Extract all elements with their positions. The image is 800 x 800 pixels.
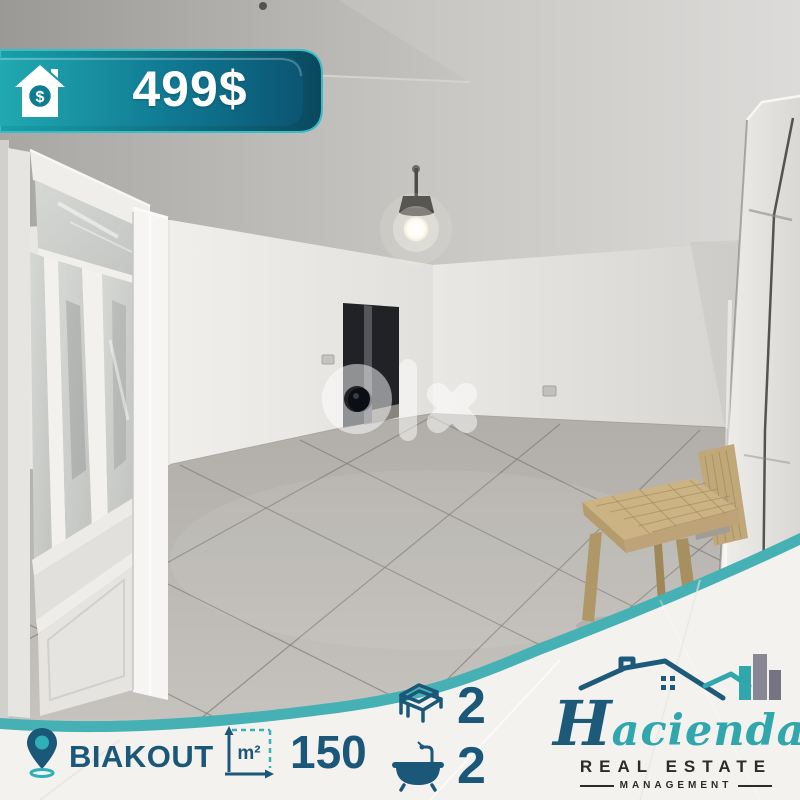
bedrooms-count: 2 [457, 680, 486, 732]
area-row: m² 150 [222, 722, 367, 782]
location-row: BIAKOUT [24, 726, 214, 788]
brand-tagline: REAL ESTATE [553, 757, 799, 777]
price-label: 499$ [88, 60, 292, 118]
location-label: BIAKOUT [69, 739, 214, 775]
bath-icon [388, 740, 448, 792]
bedrooms-row: 2 [392, 680, 486, 732]
area-value: 150 [290, 725, 367, 779]
rule-right [738, 785, 772, 787]
brand-name-rest: acienda [612, 706, 800, 756]
bathrooms-row: 2 [388, 740, 486, 792]
real-estate-ad: $ 499$ BIAKOUT m² 150 2 2 [0, 0, 800, 800]
square-meters-unit: m² [237, 743, 260, 764]
ceiling-spot-hole [259, 2, 267, 10]
wall-outlet [543, 386, 556, 396]
brand-name: Hacienda [553, 693, 799, 755]
location-pin-icon [24, 726, 60, 788]
brand-initial: H [553, 687, 612, 760]
brand-subtagline: MANAGEMENT [620, 780, 733, 791]
dollar-symbol: $ [36, 89, 45, 106]
bed-icon [392, 681, 448, 731]
left-french-door [0, 140, 168, 720]
square-meters-icon: m² [222, 722, 280, 782]
brand-logo: Hacienda REAL ESTATE MANAGEMENT [553, 646, 799, 791]
wall-outlet [322, 355, 334, 364]
bathrooms-count: 2 [457, 740, 486, 792]
brand-subtagline-row: MANAGEMENT [553, 780, 799, 791]
rule-left [580, 785, 614, 787]
